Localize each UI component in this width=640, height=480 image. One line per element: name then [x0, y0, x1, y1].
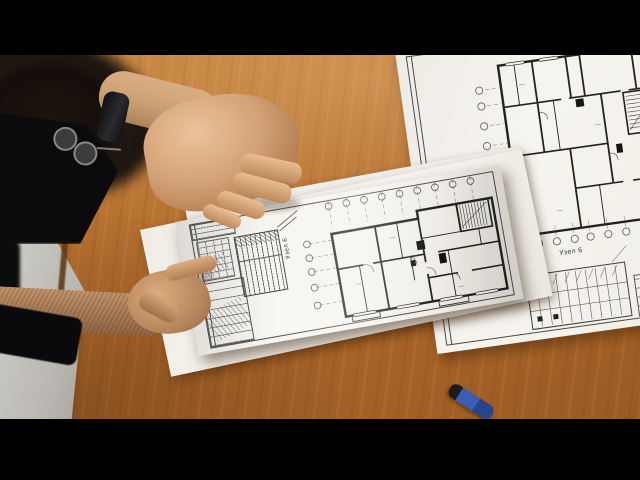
- letterbox-bottom: [0, 419, 640, 480]
- eyeglasses-temple: [97, 147, 121, 151]
- letterbox-top: [0, 0, 640, 55]
- held-axis-circles: [297, 177, 491, 309]
- video-frame: Узел 6 Узел 6: [0, 0, 640, 480]
